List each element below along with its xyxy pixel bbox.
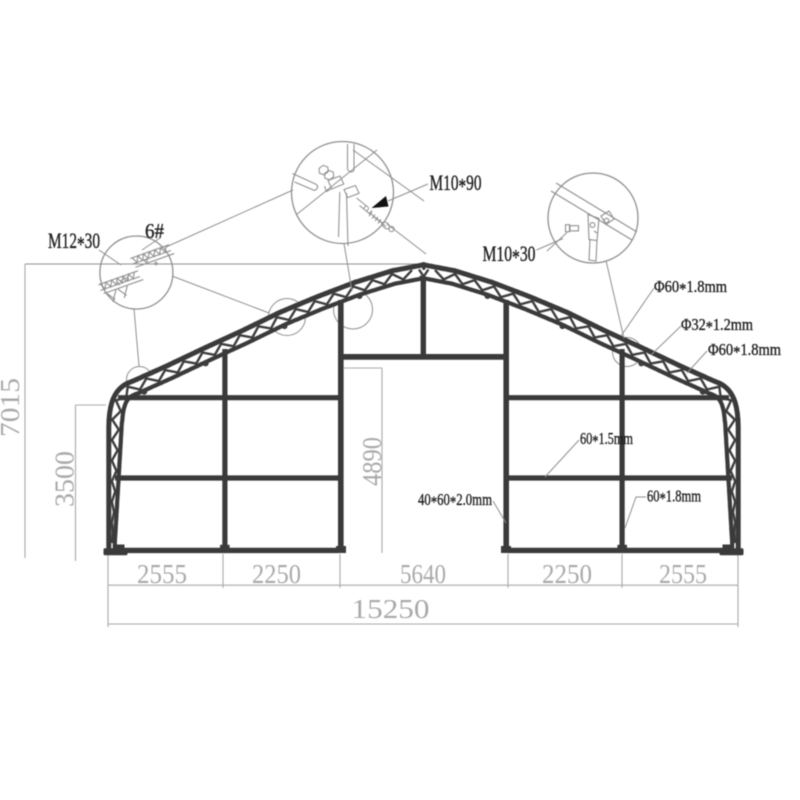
svg-text:60*1.8mm: 60*1.8mm xyxy=(647,487,701,509)
svg-text:M10*90: M10*90 xyxy=(430,170,482,199)
svg-text:6#: 6# xyxy=(145,219,164,243)
svg-text:4890: 4890 xyxy=(357,437,387,486)
svg-text:M12*30: M12*30 xyxy=(48,228,100,257)
svg-text:2555: 2555 xyxy=(659,559,707,589)
svg-text:5640: 5640 xyxy=(400,559,446,589)
svg-text:3500: 3500 xyxy=(50,451,80,507)
svg-text:2250: 2250 xyxy=(542,559,592,589)
svg-text:Φ60*1.8mm: Φ60*1.8mm xyxy=(708,340,781,362)
svg-text:60*1.5mm: 60*1.5mm xyxy=(580,429,633,451)
svg-text:15250: 15250 xyxy=(352,594,430,624)
svg-text:M10*30: M10*30 xyxy=(483,241,536,270)
svg-text:40*60*2.0mm: 40*60*2.0mm xyxy=(418,490,492,512)
svg-text:7015: 7015 xyxy=(0,378,25,437)
svg-text:2250: 2250 xyxy=(252,559,301,589)
svg-text:Φ32*1.2mm: Φ32*1.2mm xyxy=(681,315,753,337)
svg-text:2555: 2555 xyxy=(137,559,187,589)
svg-text:Φ60*1.8mm: Φ60*1.8mm xyxy=(654,277,727,299)
